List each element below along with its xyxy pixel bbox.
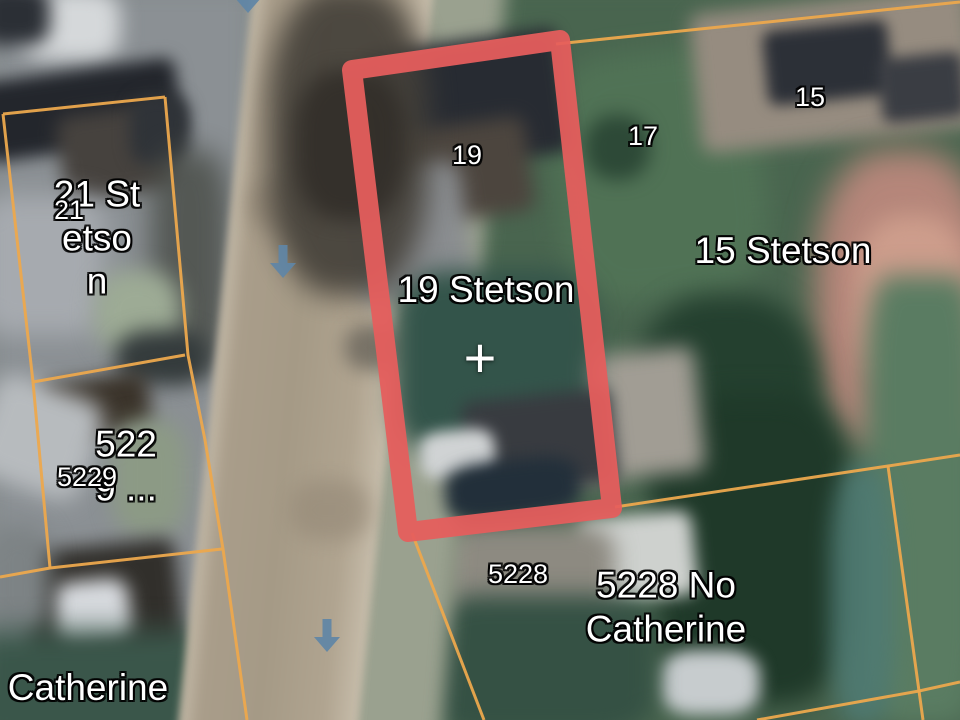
map-label-15: 15 — [795, 82, 825, 114]
map-label-19-stetson: 19 Stetson — [398, 268, 575, 312]
map-label-5228-no-catherine: 5228 No Catherine — [519, 563, 813, 650]
map-label-catherine: Catherine — [8, 666, 168, 710]
map-label-21-stetson: 21 St etso n — [54, 173, 140, 304]
map-label-19: 19 — [452, 140, 482, 172]
map-label-15-stetson: 15 Stetson — [695, 229, 872, 273]
map-label-5228: 5228 — [488, 559, 548, 591]
map-center-crosshair: + — [464, 325, 497, 390]
map-label-21: 21 — [54, 195, 84, 227]
map-canvas[interactable]: 21 St etso n522 9 ...Catherine19 Stetson… — [0, 0, 960, 720]
map-label-5229: 5229 — [57, 462, 117, 494]
map-label-17: 17 — [628, 121, 658, 153]
